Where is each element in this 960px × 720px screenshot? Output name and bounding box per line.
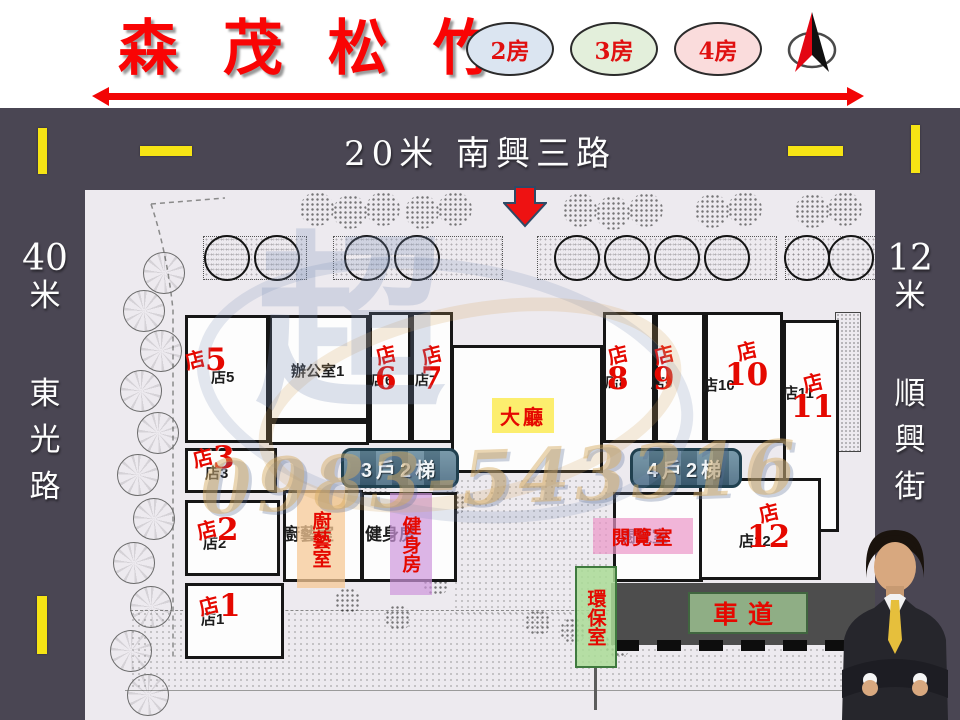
tree-icon: [438, 192, 472, 226]
agent-photo: [830, 522, 960, 720]
shop9-red-label: 店9: [653, 346, 675, 394]
tree-icon: [563, 193, 597, 227]
planter-tree-icon: [204, 235, 250, 281]
planter-tree-icon: [784, 235, 830, 281]
legend-4room: 4房: [674, 22, 762, 76]
tree-icon: [405, 195, 439, 229]
shop6-red-label: 店6: [375, 346, 397, 394]
tree-icon: [385, 605, 411, 631]
poster: 森 茂 松 竹 2房 3房 4房 20米 南興三路 40 米 東 光 路 12 …: [0, 0, 960, 720]
legend-2room-label: 2房: [490, 32, 529, 66]
kitchen-red-label: 廚藝室: [308, 511, 335, 568]
driveway-dashes: [615, 640, 865, 651]
entrance-arrow-icon: [503, 186, 547, 228]
legend-2room: 2房: [466, 22, 554, 76]
driveway-label: 車道: [713, 595, 783, 631]
tree-icon: [110, 630, 152, 672]
shop3-red-label: 店3: [193, 444, 235, 473]
tree-icon: [120, 370, 162, 412]
legend-3room: 3房: [570, 22, 658, 76]
eco-pole: [594, 668, 597, 710]
road-west-label: 40 米 東 光 路: [15, 240, 75, 510]
lobby-label: 大廳: [500, 401, 546, 430]
tree-icon: [123, 290, 165, 332]
compass-icon: [786, 8, 838, 78]
site-plan: 店5 辦公室1 店6 店7 店8 店9 店10 店11 店12 店3 店2 店1…: [85, 190, 875, 720]
shop11-red-label: 店11: [791, 374, 834, 422]
tree-icon: [828, 192, 862, 226]
road-east-label: 12 米 順 興 街: [880, 240, 940, 510]
tree-icon: [300, 192, 334, 226]
tree-icon: [117, 454, 159, 496]
planter-tree-icon: [344, 235, 390, 281]
eco-label: 環保室: [583, 589, 610, 646]
planter-tree-icon: [554, 235, 600, 281]
shop1-red-label: 店1: [199, 592, 241, 621]
reading-red-label: 閱覽室: [611, 523, 674, 550]
tree-icon: [137, 412, 179, 454]
planter-tree-icon: [654, 235, 700, 281]
road-north-label: 20米 南興三路: [0, 126, 960, 175]
room-utility: [269, 421, 369, 445]
shop5-red-label: 店5: [185, 346, 227, 375]
planter-tree-icon: [604, 235, 650, 281]
shop2-red-label: 店2: [197, 516, 239, 545]
plan-ground-line: [125, 690, 865, 691]
road-east-width: 12: [887, 240, 933, 278]
tree-icon: [695, 194, 729, 228]
planter-tree-icon: [394, 235, 440, 281]
tree-icon: [140, 330, 182, 372]
page-title: 森 茂 松 竹: [118, 0, 505, 87]
legend-3room-label: 3房: [594, 32, 633, 66]
tree-icon: [525, 610, 551, 636]
shop8-red-label: 店8: [607, 346, 629, 394]
tree-icon: [133, 498, 175, 540]
planter-tree-icon: [704, 235, 750, 281]
road-mark-icon: [37, 596, 47, 654]
tree-icon: [366, 192, 400, 226]
planter-tree-icon: [828, 235, 874, 281]
road-west-width: 40: [22, 240, 68, 278]
tree-icon: [143, 252, 185, 294]
reading-highlight: 閱覽室: [593, 518, 693, 554]
lobby-highlight: 大廳: [492, 398, 554, 433]
tree-icon: [629, 193, 663, 227]
tree-icon: [596, 196, 630, 230]
label-office: 辦公室1: [291, 360, 344, 381]
gym-highlight: 健身房: [390, 493, 432, 595]
tree-icon: [728, 192, 762, 226]
gym-red-label: 健身房: [398, 516, 425, 573]
legend-4room-label: 4房: [698, 32, 737, 66]
kitchen-highlight: 廚藝室: [297, 490, 345, 588]
shop10-red-label: 店10: [725, 342, 768, 390]
title-double-arrow: [108, 93, 848, 100]
driveway-badge: 車道: [688, 592, 808, 634]
tree-icon: [335, 588, 361, 614]
planter-tree-icon: [254, 235, 300, 281]
tree-icon: [130, 586, 172, 628]
shop12-red-label: 店12: [747, 504, 790, 552]
stair-badge-left: 3戶2梯: [341, 448, 459, 488]
tree-icon: [795, 194, 829, 228]
tree-icon: [127, 674, 169, 716]
tree-icon: [333, 195, 367, 229]
eco-room: 環保室: [575, 566, 617, 668]
shop7-red-label: 店7: [421, 346, 443, 394]
stair-badge-right: 4戶2梯: [630, 448, 742, 488]
tree-icon: [113, 542, 155, 584]
